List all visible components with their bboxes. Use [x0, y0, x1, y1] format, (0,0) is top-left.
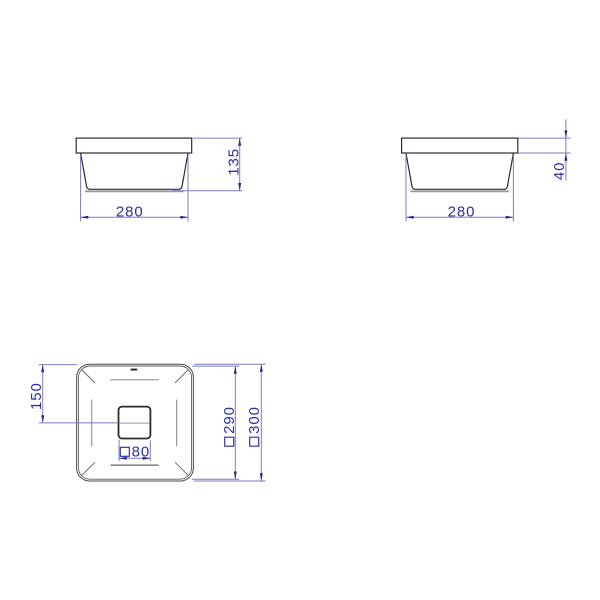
svg-text:150: 150 — [28, 382, 45, 410]
svg-text:300: 300 — [246, 406, 263, 434]
svg-text:80: 80 — [132, 443, 151, 460]
svg-text:40: 40 — [551, 162, 568, 181]
svg-text:280: 280 — [448, 203, 476, 220]
svg-text:135: 135 — [226, 148, 243, 176]
svg-text:280: 280 — [116, 203, 144, 220]
svg-text:290: 290 — [221, 406, 238, 434]
